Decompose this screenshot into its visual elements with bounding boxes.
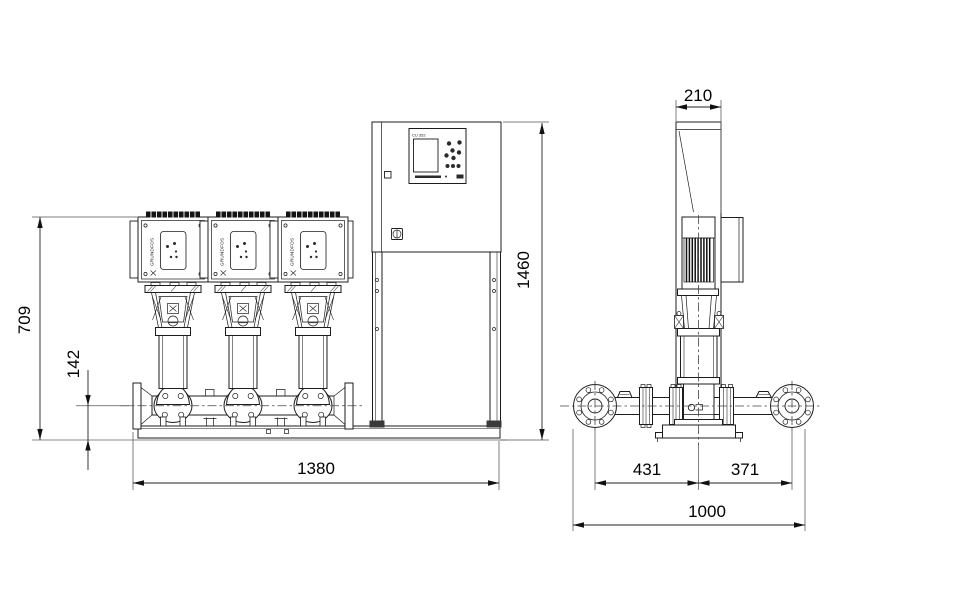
dim-text-142: 142 [64, 350, 83, 378]
manifold-port-stub [206, 390, 215, 397]
manifold-support [204, 418, 217, 427]
dim-manifold-height-142: 142 [64, 350, 133, 470]
dim-text-1000: 1000 [688, 502, 726, 521]
dim-base-depth-1000: 1000 [573, 429, 805, 531]
manifold-port-stub [277, 390, 286, 397]
dim-text-431: 431 [633, 460, 661, 479]
cabinet-foot [487, 421, 502, 428]
dim-pump-height-709: 709 [15, 217, 137, 440]
pump-1 [130, 212, 208, 427]
dim-suction-offset-431: 431 [595, 430, 792, 490]
dim-total-width-1380: 1380 [133, 432, 499, 490]
dim-text-371: 371 [731, 460, 759, 479]
motor-terminal-box [721, 218, 743, 283]
side-view: 210 431 371 1000 [560, 86, 820, 531]
coupling-plate [678, 289, 719, 296]
motor-box-side-tab-right [348, 221, 353, 278]
cabinet-control-panel: CU 352 [409, 129, 466, 184]
cabinet-legs [370, 252, 502, 428]
base-frame [138, 426, 500, 438]
controller-label: CU 352 [412, 133, 426, 138]
pump-system-dimensional-drawing: GRUNDFOS [0, 0, 976, 600]
control-cabinet: CU 352 [370, 122, 502, 428]
dim-text-709: 709 [15, 306, 34, 334]
cabinet-foot [370, 421, 385, 428]
panel-bottom-strip [415, 176, 441, 179]
front-view: CU 352 [15, 122, 549, 490]
motor-side [682, 217, 743, 290]
dim-text-210: 210 [684, 86, 712, 105]
dim-total-height-1460: 1460 [500, 122, 549, 440]
dim-text-1460: 1460 [514, 251, 533, 289]
dim-discharge-offset-371: 371 [699, 460, 793, 486]
technical-drawing-page: GRUNDFOS [0, 0, 976, 600]
dim-text-1380: 1380 [297, 459, 335, 478]
pump-2 [200, 212, 278, 427]
manifold-support [275, 418, 288, 427]
